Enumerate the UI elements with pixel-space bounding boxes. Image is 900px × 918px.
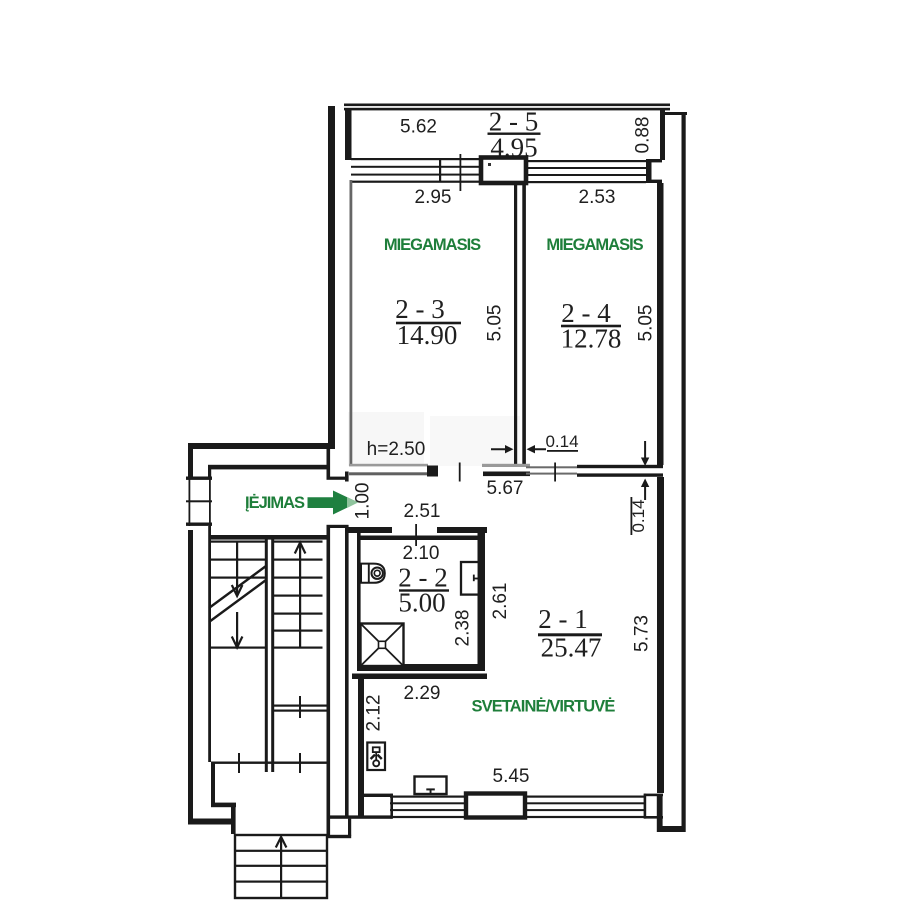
svg-text:5.45: 5.45 [493,766,530,787]
svg-text:0.88: 0.88 [633,117,654,154]
svg-text:14.90: 14.90 [397,320,458,350]
svg-text:2.29: 2.29 [404,683,441,704]
svg-text:2.38: 2.38 [453,610,474,647]
svg-text:2.10: 2.10 [403,543,440,564]
svg-text:12.78: 12.78 [561,324,622,354]
svg-text:0.14: 0.14 [545,432,578,451]
svg-text:5.00: 5.00 [398,588,445,618]
svg-text:5.05: 5.05 [485,305,506,342]
svg-text:5.62: 5.62 [400,117,437,138]
svg-text:5.73: 5.73 [632,615,653,652]
svg-text:2.95: 2.95 [415,187,452,208]
svg-text:5.05: 5.05 [636,305,657,342]
svg-text:SVETAINĖ/VIRTUVĖ: SVETAINĖ/VIRTUVĖ [472,698,616,716]
svg-text:5.67: 5.67 [487,478,524,499]
svg-text:ĮĖJIMAS: ĮĖJIMAS [245,494,305,512]
svg-text:2.51: 2.51 [404,501,441,522]
svg-text:2 - 1: 2 - 1 [538,604,588,634]
svg-text:h=2.50: h=2.50 [367,439,426,460]
svg-text:2.12: 2.12 [364,695,385,732]
svg-text:25.47: 25.47 [541,633,602,663]
svg-text:1.00: 1.00 [352,483,373,520]
svg-text:MIEGAMASIS: MIEGAMASIS [546,236,643,254]
svg-text:MIEGAMASIS: MIEGAMASIS [384,236,481,254]
svg-text:2.53: 2.53 [579,187,616,208]
svg-text:2.61: 2.61 [490,583,511,620]
